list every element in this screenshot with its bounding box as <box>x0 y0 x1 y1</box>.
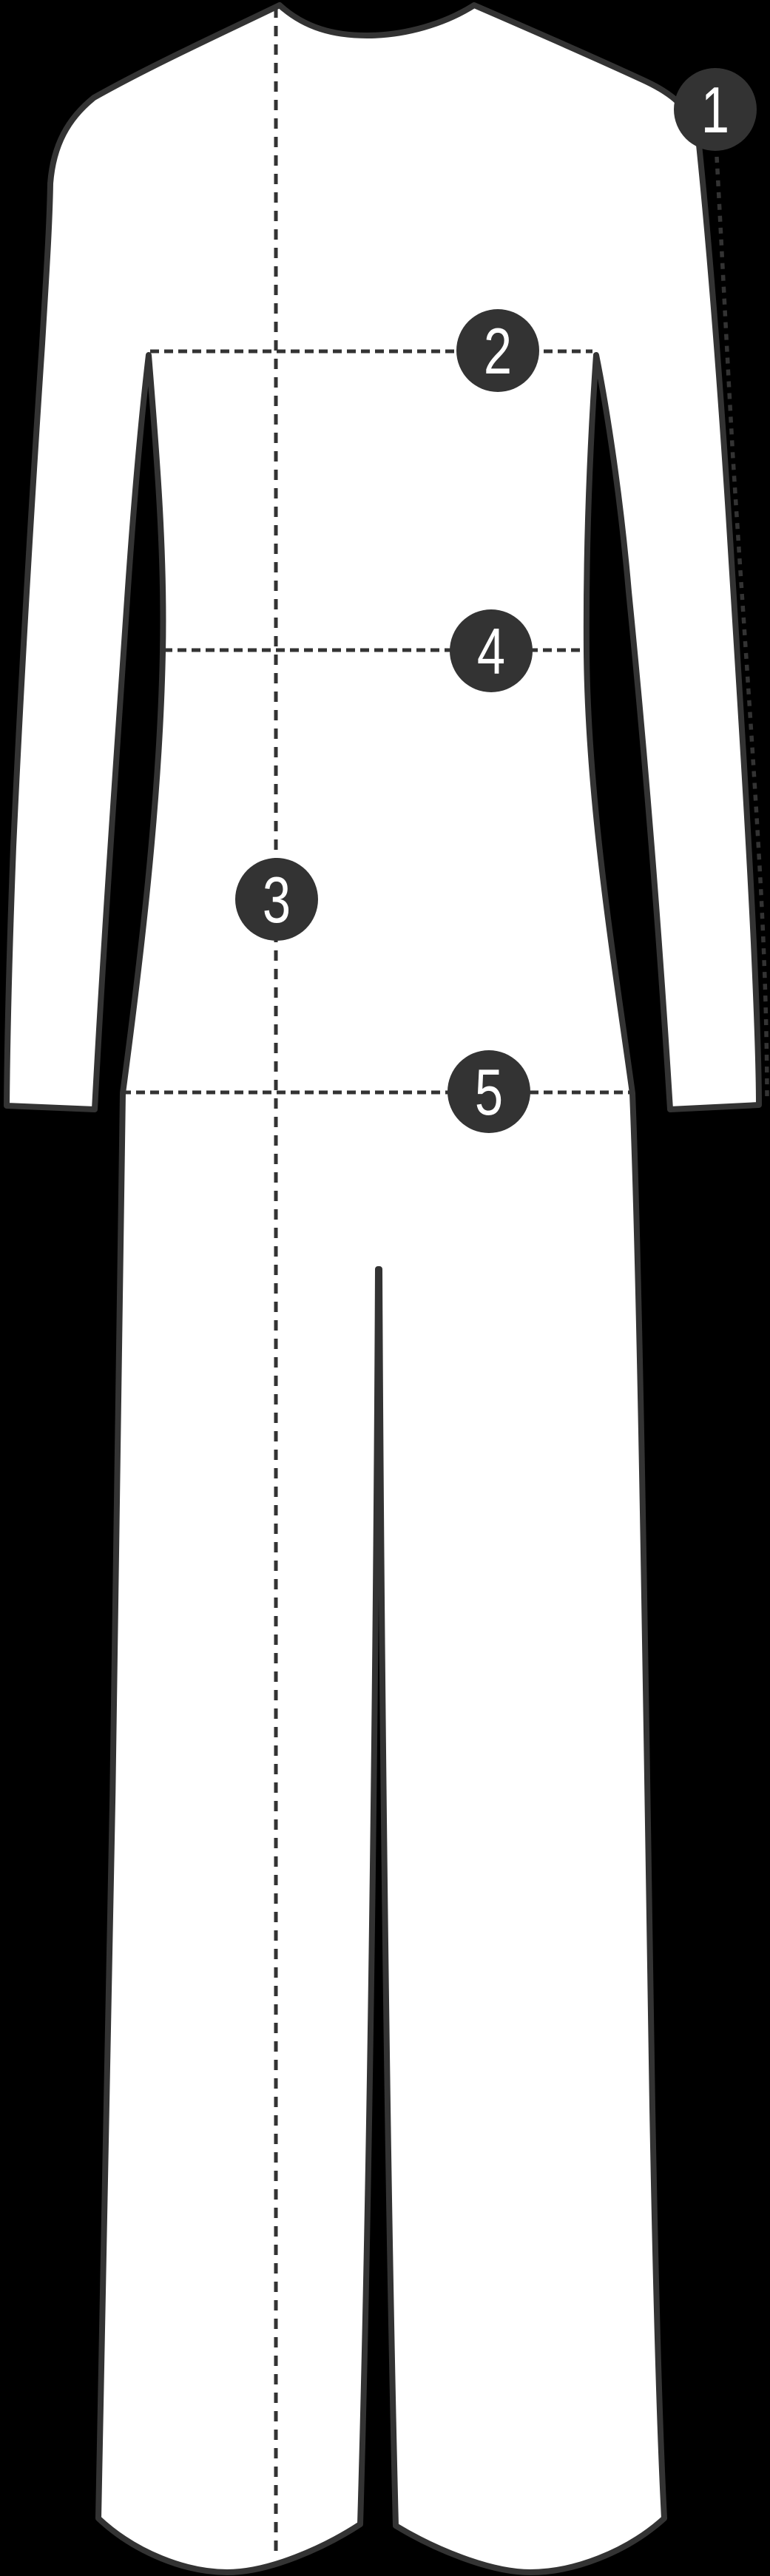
marker-1-number: 1 <box>701 74 729 146</box>
marker-5-number: 5 <box>475 1056 503 1129</box>
jumpsuit-diagram-canvas: 1 2 3 4 5 <box>0 0 770 2576</box>
marker-2-badge[interactable]: 2 <box>456 309 539 392</box>
marker-5-badge[interactable]: 5 <box>448 1050 530 1133</box>
marker-3-number: 3 <box>263 864 291 936</box>
garment-measurement-diagram: 1 2 3 4 5 <box>0 0 770 2576</box>
marker-3-badge[interactable]: 3 <box>235 858 318 941</box>
marker-4-number: 4 <box>477 615 505 688</box>
marker-2-number: 2 <box>484 315 512 388</box>
jumpsuit-outline <box>7 5 759 2572</box>
marker-4-badge[interactable]: 4 <box>450 609 533 692</box>
marker-1-badge[interactable]: 1 <box>674 68 757 151</box>
